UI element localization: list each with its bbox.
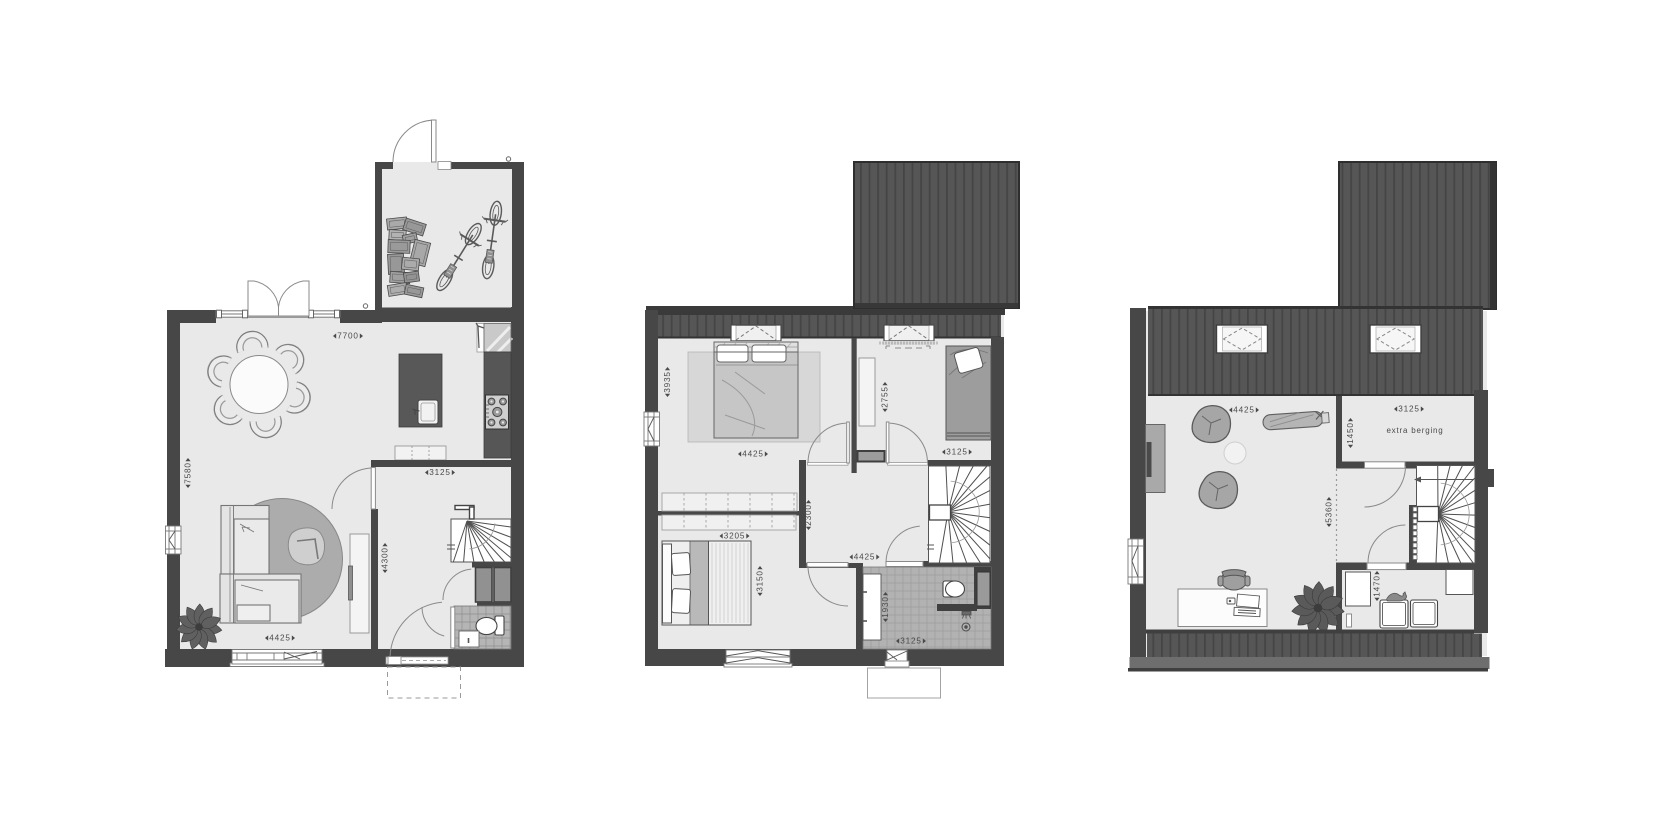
svg-text:3150: 3150	[756, 570, 765, 591]
svg-text:3125: 3125	[900, 637, 921, 646]
svg-text:7580: 7580	[184, 462, 193, 483]
svg-text:5360: 5360	[1325, 501, 1334, 522]
svg-text:4425: 4425	[854, 553, 875, 562]
svg-text:1930: 1930	[881, 596, 890, 617]
svg-text:4425: 4425	[742, 450, 763, 459]
svg-text:extra berging: extra berging	[1386, 426, 1443, 435]
svg-text:1450: 1450	[1346, 422, 1355, 443]
svg-text:2755: 2755	[881, 386, 890, 407]
svg-text:4300: 4300	[381, 547, 390, 568]
svg-text:3935: 3935	[663, 371, 672, 392]
svg-text:7700: 7700	[337, 332, 358, 341]
svg-text:4425: 4425	[269, 634, 290, 643]
svg-text:4425: 4425	[1233, 406, 1254, 415]
svg-text:3125: 3125	[429, 468, 450, 477]
svg-text:3125: 3125	[946, 448, 967, 457]
svg-text:2300: 2300	[804, 504, 813, 525]
svg-text:3205: 3205	[724, 532, 745, 541]
svg-text:1470: 1470	[1373, 575, 1382, 596]
svg-text:3125: 3125	[1398, 405, 1419, 414]
